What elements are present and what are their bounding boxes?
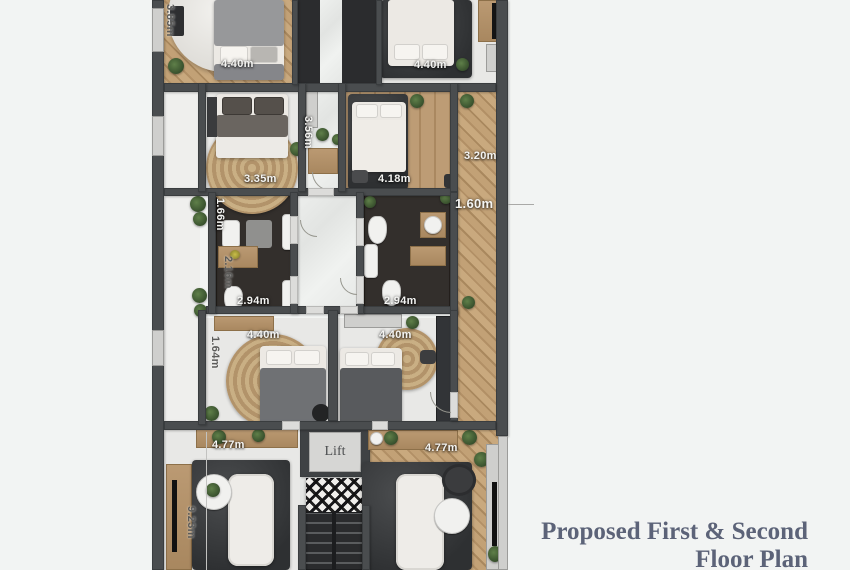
dimension-label: 3.56m	[302, 116, 314, 149]
dimension-label: 2.94m	[237, 295, 270, 307]
door-threshold	[290, 216, 298, 244]
wall-stairs-left	[298, 505, 306, 570]
dimension-label: 4.40m	[221, 58, 254, 70]
side-terrace	[164, 85, 200, 425]
plant	[193, 212, 207, 226]
plant	[364, 196, 376, 208]
bed	[340, 348, 402, 424]
dimension-label: 4.77m	[425, 442, 458, 454]
wall-h-row4	[164, 421, 496, 430]
plant	[190, 196, 206, 212]
window	[152, 8, 164, 52]
plan-title-line1: Proposed First & Second	[388, 518, 808, 546]
wall-v-bedroom5	[198, 310, 206, 425]
dimension-label: 1.64m	[209, 336, 221, 369]
wall-right-outer	[496, 0, 508, 436]
dimension-label: 2.94m	[384, 295, 417, 307]
door-threshold	[308, 188, 334, 196]
door-threshold	[306, 306, 324, 314]
plant	[168, 58, 184, 74]
plant	[410, 94, 424, 108]
window	[152, 116, 164, 156]
plant	[460, 94, 474, 108]
toilet	[368, 216, 387, 244]
sink	[424, 216, 442, 234]
plan-title: Proposed First & Second Floor Plan	[388, 518, 808, 570]
door-threshold	[290, 276, 298, 304]
corridor-floor	[458, 88, 498, 428]
entry-hall-strip	[320, 0, 342, 85]
armchair	[442, 464, 476, 496]
wall-closet-left	[292, 0, 298, 85]
dimension-line	[206, 432, 207, 570]
door-threshold	[372, 421, 388, 430]
wall-closet-right	[376, 0, 382, 85]
dimension-label: 1.66m	[214, 198, 226, 231]
door-threshold	[450, 392, 458, 418]
window	[152, 330, 164, 366]
wall-stairs-right	[362, 505, 370, 570]
dimension-label: 2.16m	[222, 256, 234, 289]
dimension-line	[508, 204, 534, 205]
vanity-counter	[410, 246, 446, 266]
plant	[192, 288, 207, 303]
wall-v-bedroom3	[198, 83, 206, 192]
dimension-label: 9.23m	[185, 506, 197, 539]
hall-wood-inlay	[308, 148, 338, 174]
dimension-label: 4.18m	[378, 173, 411, 185]
plan-title-line2: Floor Plan	[388, 546, 808, 570]
dimension-label: 3.20m	[464, 150, 497, 162]
wall-v-hall2-right	[338, 83, 346, 192]
floor-plan: Lift 3.85m 4.40	[0, 0, 850, 570]
bed	[352, 102, 406, 172]
plant	[204, 406, 219, 421]
lift-cab: Lift	[309, 432, 361, 472]
wall-v-bedroom4	[450, 83, 458, 192]
dimension-label: 4.40m	[247, 329, 280, 341]
door-threshold	[356, 218, 364, 246]
pouf	[420, 350, 436, 364]
plant	[462, 430, 477, 445]
plant	[406, 316, 419, 329]
bed	[388, 0, 454, 66]
patterned-rug	[306, 478, 364, 512]
dimension-label: 4.40m	[379, 329, 412, 341]
dimension-label: 1.60m	[455, 196, 493, 211]
wall-left-outer	[152, 0, 164, 570]
decor-dish	[370, 432, 383, 445]
dimension-label: 4.40m	[414, 59, 447, 71]
sofa	[228, 474, 274, 566]
plant	[456, 58, 469, 71]
console-shelf	[344, 314, 402, 328]
dimension-label: 3.85m	[164, 4, 176, 37]
stair-stringer	[332, 512, 336, 570]
plant	[384, 431, 398, 445]
dresser	[207, 97, 217, 137]
door-threshold	[282, 421, 300, 430]
bed	[216, 94, 288, 158]
tv	[172, 480, 177, 552]
bench	[352, 170, 368, 183]
plant	[462, 296, 475, 309]
plant	[206, 483, 220, 497]
wall-h-row1	[164, 83, 496, 92]
plant	[252, 429, 265, 442]
wall-v-divider-bedrooms	[328, 310, 338, 421]
closet-left	[298, 0, 320, 85]
shower-tray	[364, 244, 378, 278]
dimension-label: 4.77m	[212, 439, 245, 451]
door-threshold	[356, 276, 364, 304]
bath-mat	[246, 220, 272, 248]
plant	[316, 128, 329, 141]
door-threshold	[340, 306, 358, 314]
closet-right	[342, 0, 376, 85]
lift-label: Lift	[325, 444, 346, 460]
dimension-label: 3.35m	[244, 173, 277, 185]
